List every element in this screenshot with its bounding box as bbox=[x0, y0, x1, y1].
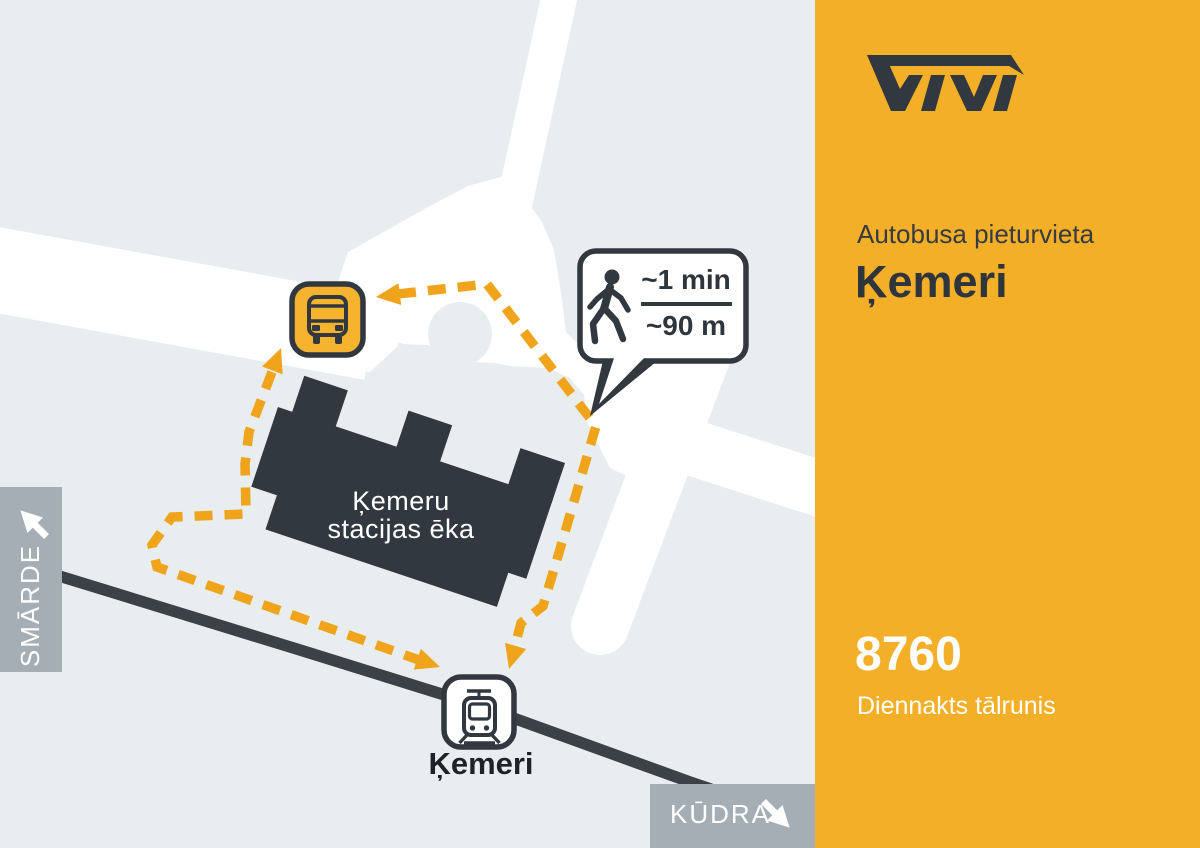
building-label-line1: Ķemeru bbox=[317, 487, 485, 515]
sign-smarde-label: SMĀRDE bbox=[16, 543, 47, 666]
building-label-line2: stacijas ēka bbox=[317, 515, 485, 543]
phone-label: Diennakts tālrunis bbox=[857, 692, 1056, 721]
transit-stop-poster: Ķemeru stacijas ēka ~1 min ~90 m Ķemeri … bbox=[0, 0, 1200, 848]
sign-smarde: SMĀRDE bbox=[0, 538, 62, 672]
walk-distance: ~90 m bbox=[634, 310, 738, 342]
building-label: Ķemeru stacijas ēka bbox=[317, 487, 485, 543]
phone-number: 8760 bbox=[855, 627, 962, 682]
vivi-logo bbox=[853, 52, 1031, 114]
stop-type-subtitle: Autobusa pieturvieta bbox=[857, 219, 1094, 250]
map-panel: Ķemeru stacijas ēka ~1 min ~90 m Ķemeri … bbox=[0, 0, 815, 848]
info-sidebar: Autobusa pieturvieta Ķemeri 8760 Diennak… bbox=[815, 0, 1200, 848]
train-icon bbox=[444, 677, 514, 747]
stop-name-title: Ķemeri bbox=[855, 256, 1008, 308]
map-graphics bbox=[0, 0, 815, 848]
train-station-label: Ķemeri bbox=[401, 746, 561, 782]
sign-kudra: KŪDRA bbox=[650, 784, 768, 844]
bus-icon bbox=[292, 284, 363, 355]
ground-bump bbox=[428, 302, 492, 366]
sign-kudra-label: KŪDRA bbox=[670, 799, 771, 830]
bubble-divider bbox=[641, 302, 732, 306]
walk-time: ~1 min bbox=[634, 264, 738, 296]
